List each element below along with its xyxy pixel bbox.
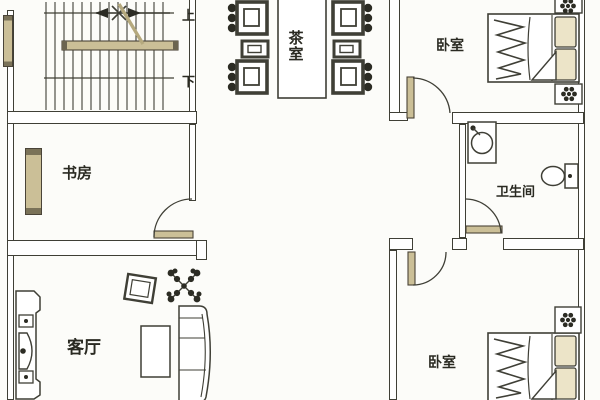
armchair-symbol xyxy=(124,274,156,303)
room-label-bedroom-bottom: 卧室 xyxy=(428,352,456,372)
room-label-bathroom: 卫生间 xyxy=(496,181,535,200)
tv-cabinet-symbol xyxy=(16,291,40,399)
sofa-symbol xyxy=(179,306,210,400)
coffee-table-symbol xyxy=(141,326,170,377)
plant-symbol xyxy=(167,269,202,303)
door-bedroom-bottom xyxy=(408,252,446,285)
room-label-living-room: 客厅 xyxy=(67,333,101,358)
stair-label-down: 下 xyxy=(182,71,195,90)
stair-label-up: 上 xyxy=(182,5,195,24)
door-bedroom-top xyxy=(407,77,450,118)
bed-symbol-bottom xyxy=(488,307,581,400)
room-label-tea-room: 茶室 xyxy=(287,31,305,63)
floor-plan: 茶室 卧室 书房 卫生间 客厅 卧室 上 下 xyxy=(0,0,600,400)
bed-symbol-top xyxy=(488,0,582,104)
room-label-study: 书房 xyxy=(62,162,92,183)
sink-symbol xyxy=(468,122,496,163)
room-label-bedroom-top: 卧室 xyxy=(436,35,464,55)
door-bathroom xyxy=(466,199,502,233)
door-study xyxy=(154,199,193,238)
toilet-symbol xyxy=(542,164,579,188)
staircase-symbol xyxy=(44,2,178,110)
stair-handrail xyxy=(62,41,178,50)
